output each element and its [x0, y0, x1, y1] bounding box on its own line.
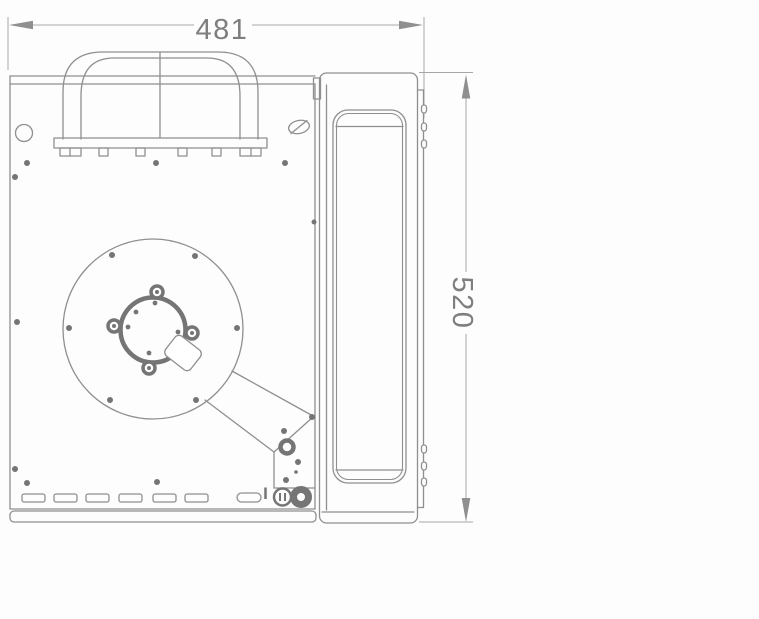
screw-dot [107, 397, 113, 403]
lug-screw [112, 324, 116, 328]
rotary-knob [294, 490, 309, 505]
collar-flange [54, 138, 267, 148]
vent-slots [22, 493, 261, 502]
rivet-dot [176, 330, 181, 335]
arrow-down-icon [462, 498, 471, 522]
screw-dot [309, 414, 315, 420]
bottom-rail [10, 511, 316, 522]
screw-dot [282, 160, 288, 166]
access-door-outer [333, 110, 406, 483]
scroll-arm-edge [205, 400, 274, 452]
screw-dot [24, 480, 30, 486]
screw-dot [109, 252, 115, 258]
vent-slot [54, 494, 77, 502]
fan-housing-circle [63, 239, 243, 419]
arrow-right-icon [399, 21, 423, 29]
hinge-nub [422, 445, 427, 453]
lug-screw [155, 290, 159, 294]
switch-knob [274, 489, 291, 506]
scroll-arm-edge [232, 371, 313, 416]
flange-tab [99, 148, 108, 156]
side-panel [314, 73, 427, 523]
screw-dot [14, 319, 20, 325]
duct-collar [54, 52, 267, 156]
arrow-left-icon [9, 21, 33, 29]
lug-screw [147, 366, 151, 370]
hinge-nub [422, 140, 427, 148]
hinge-nub [422, 478, 427, 486]
hinge-nub [422, 123, 427, 131]
mounting-hole [16, 125, 33, 142]
slotted-screw-icon [287, 118, 310, 135]
screw-dot [294, 470, 298, 474]
power-controls [266, 488, 309, 506]
rivet-dot [126, 325, 131, 330]
lug-screw [190, 331, 194, 335]
vent-slot [22, 494, 45, 502]
rivet-dot [153, 301, 158, 306]
access-door-inner [337, 114, 403, 480]
motor-mount [108, 286, 203, 374]
screw-dot [24, 160, 30, 166]
screw-dot [153, 160, 159, 166]
width-dimension-label: 481 [196, 14, 249, 46]
terminal-box-tab [163, 333, 204, 372]
flange-tab [178, 148, 187, 156]
screw-dot [283, 477, 289, 483]
hinge-nub [422, 462, 427, 470]
screw-dot [295, 459, 301, 465]
screw-dot [12, 174, 18, 180]
grommet-ring [281, 441, 294, 454]
screw-dot [312, 220, 317, 225]
vent-slot [86, 494, 109, 502]
flange-tab [136, 148, 145, 156]
screw-dot [234, 325, 240, 331]
rivet-dot [147, 351, 152, 356]
vent-slot [153, 494, 176, 502]
arrow-up-icon [462, 75, 471, 99]
technical-drawing: 481 520 [0, 0, 759, 619]
vent-slot [119, 494, 142, 502]
screw-dot [66, 325, 72, 331]
flange-tab [212, 148, 221, 156]
screw-dots [12, 160, 317, 486]
hinge-nub [422, 105, 427, 113]
height-dimension: 520 [419, 73, 478, 523]
screw-dot [192, 253, 198, 259]
fan-unit-drawing: 481 520 [0, 0, 759, 619]
pill-slot [237, 493, 261, 502]
screw-dot [281, 428, 287, 434]
vent-slot [185, 494, 208, 502]
screw-dot [12, 466, 18, 472]
height-dimension-label: 520 [446, 277, 478, 330]
rivet-dot [134, 310, 139, 315]
screw-dot [193, 397, 199, 403]
screw-dot [154, 479, 160, 485]
